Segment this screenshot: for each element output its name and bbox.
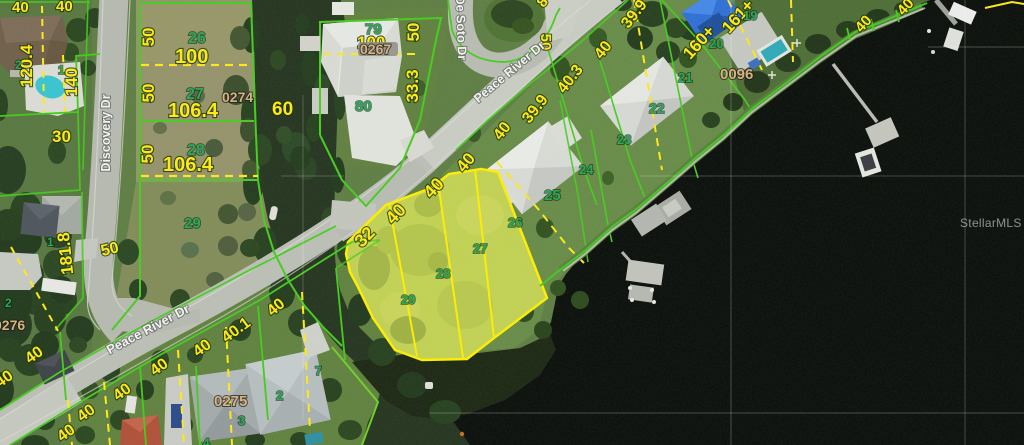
svg-text:24: 24 [579,162,594,177]
svg-text:2: 2 [15,58,22,72]
svg-text:25: 25 [544,187,561,204]
svg-text:140: 140 [62,68,81,96]
svg-text:0275: 0275 [214,393,247,410]
svg-text:21: 21 [678,70,692,85]
svg-text:100: 100 [175,46,208,68]
svg-text:40: 40 [56,0,73,15]
svg-text:De Soto Dr: De Soto Dr [453,0,469,61]
svg-text:4: 4 [203,436,210,445]
svg-text:26: 26 [508,215,522,230]
svg-text:StellarMLS: StellarMLS [960,216,1022,230]
svg-text:0274: 0274 [222,89,253,105]
svg-text:27: 27 [473,241,487,256]
svg-text:Discovery Dr: Discovery Dr [99,94,113,171]
svg-text:28: 28 [187,142,205,159]
svg-text:2: 2 [276,388,283,403]
svg-text:50: 50 [139,84,158,103]
svg-text:27: 27 [186,86,204,103]
svg-text:2: 2 [5,296,12,310]
svg-text:3: 3 [238,413,245,428]
svg-text:29: 29 [401,292,415,307]
svg-text:50: 50 [404,23,423,42]
svg-text:29: 29 [184,215,201,232]
svg-text:50: 50 [138,145,157,164]
svg-text:0267: 0267 [360,41,391,57]
svg-text:26: 26 [188,30,206,47]
svg-text:20: 20 [709,36,723,51]
svg-text:23: 23 [617,132,631,147]
svg-text:19: 19 [743,8,757,23]
svg-text:40: 40 [12,0,29,16]
svg-text:80: 80 [355,98,372,115]
svg-text:7: 7 [315,364,322,378]
svg-text:1: 1 [58,63,65,77]
svg-text:28: 28 [436,266,450,281]
svg-text:1: 1 [47,235,54,249]
svg-text:22: 22 [649,100,665,116]
svg-text:0276: 0276 [0,317,25,333]
svg-text:30: 30 [52,127,71,146]
svg-text:0096: 0096 [720,66,753,83]
svg-text:50: 50 [139,28,158,47]
svg-text:79: 79 [365,21,382,38]
svg-text:60: 60 [272,99,293,120]
svg-text:106.4: 106.4 [168,100,219,122]
svg-text:33.3: 33.3 [403,69,422,102]
